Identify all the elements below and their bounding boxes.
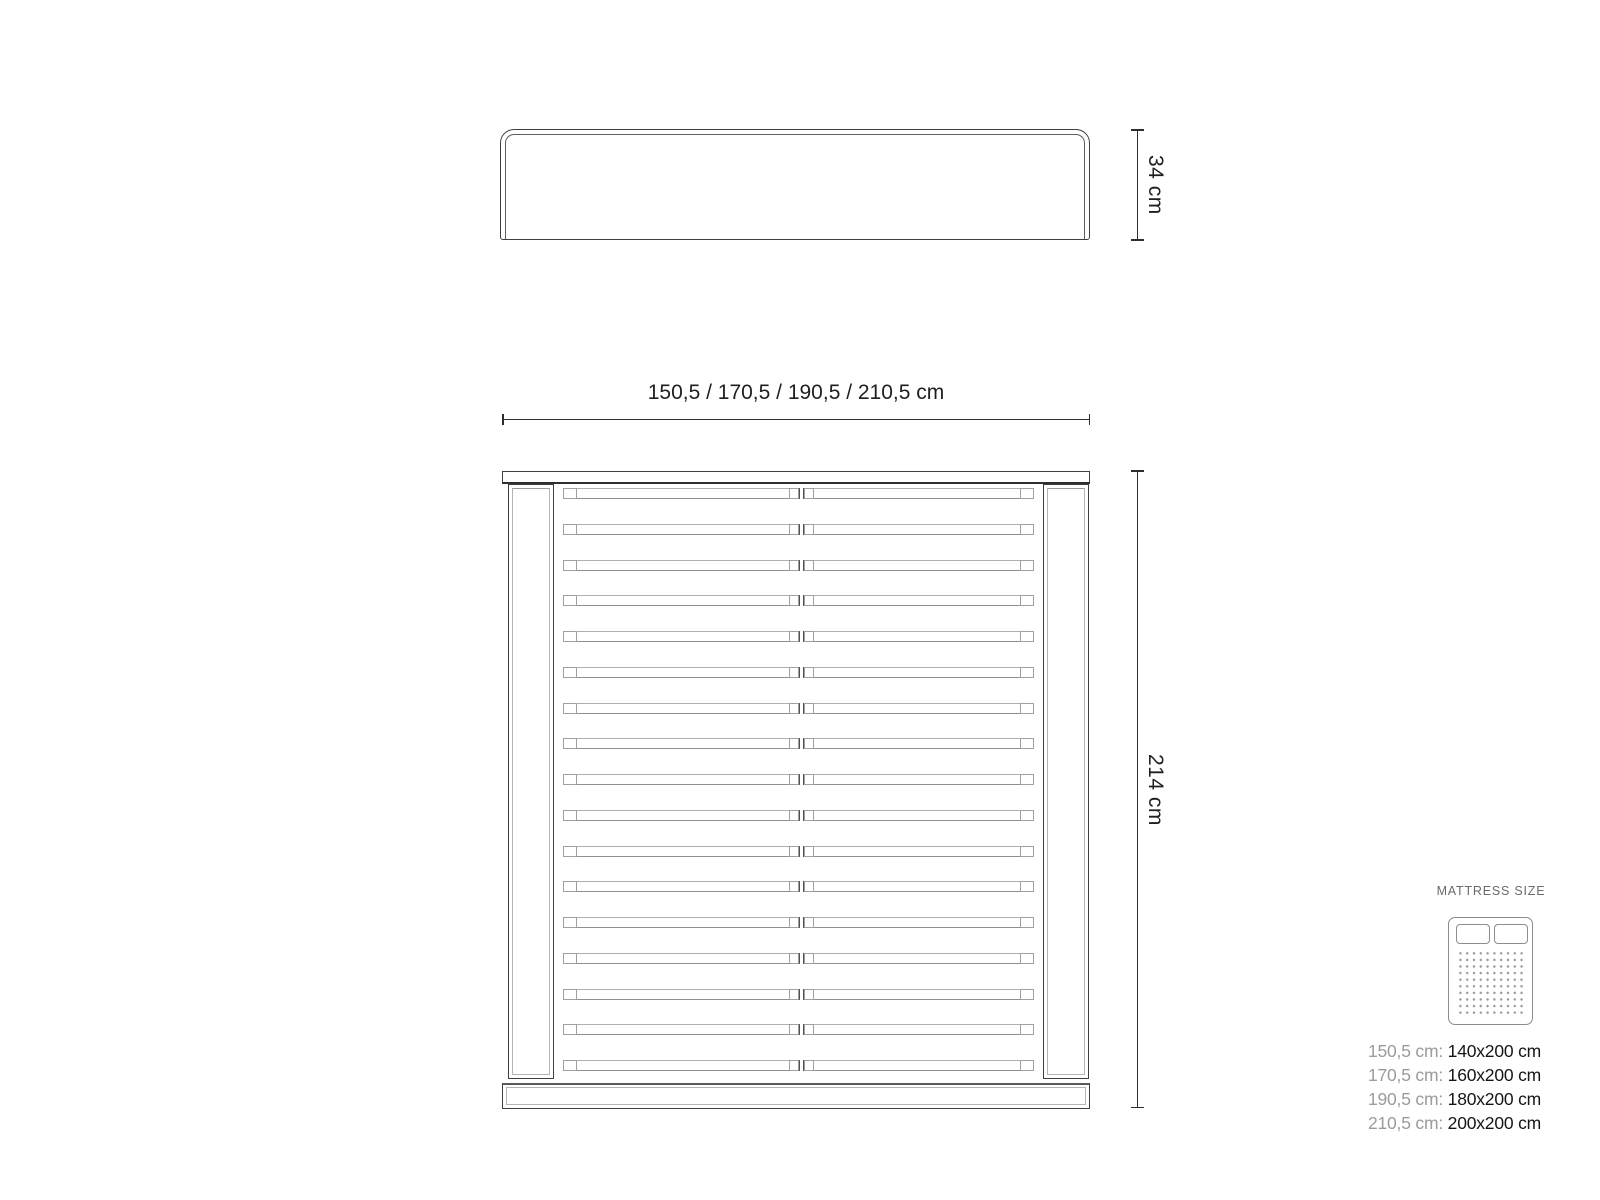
slat-center-cap-left [789, 989, 799, 1000]
slat-center-cap-right [804, 738, 814, 749]
slat-end-cap-left [563, 810, 577, 821]
slat-center-cap-left [789, 953, 799, 964]
side-rail-left-inner-line [512, 488, 550, 1075]
slat [563, 488, 1034, 499]
slat-center-cap-right [804, 774, 814, 785]
mattress-size-row: 150,5 cm: 140x200 cm [1361, 1039, 1541, 1063]
slat-end-cap-right [1020, 1024, 1034, 1035]
slat [563, 667, 1034, 678]
side-rail-right-inner-line [1047, 488, 1085, 1075]
slat [563, 1024, 1034, 1035]
slat-end-cap-left [563, 524, 577, 535]
slat-center-cap-right [804, 488, 814, 499]
slat-end-cap-left [563, 953, 577, 964]
slat [563, 774, 1034, 785]
headboard-top-edge-line [505, 134, 1085, 239]
slat-end-cap-left [563, 738, 577, 749]
dimension-cap-left [502, 414, 504, 425]
slat-center-cap-left [789, 881, 799, 892]
slat-end-cap-left [563, 1060, 577, 1071]
slat-center-cap-right [804, 667, 814, 678]
slat-end-cap-left [563, 881, 577, 892]
slat-end-cap-left [563, 774, 577, 785]
slat-end-cap-right [1020, 738, 1034, 749]
slat-center-cap-right [804, 631, 814, 642]
footboard-inner-line [506, 1087, 1086, 1105]
slat-center-cap-left [789, 738, 799, 749]
slat-end-cap-right [1020, 1060, 1034, 1071]
slat [563, 1060, 1034, 1071]
slat-center-cap-right [804, 953, 814, 964]
dimension-cap-top [1131, 470, 1144, 472]
slat-end-cap-right [1020, 488, 1034, 499]
mattress-size-list: 150,5 cm: 140x200 cm 170,5 cm: 160x200 c… [1361, 1039, 1541, 1135]
slat-end-cap-right [1020, 560, 1034, 571]
headboard-plan-bar [502, 471, 1090, 484]
headboard-height-label: 34 cm [1143, 129, 1167, 240]
slat [563, 703, 1034, 714]
slat-end-cap-right [1020, 810, 1034, 821]
slat [563, 810, 1034, 821]
side-rail-left [508, 484, 554, 1079]
slat-end-cap-right [1020, 667, 1034, 678]
dimension-line-frame-width [502, 419, 1090, 420]
mattress-size-row: 190,5 cm: 180x200 cm [1361, 1087, 1541, 1111]
slat-center-cap-right [804, 881, 814, 892]
slat-end-cap-left [563, 917, 577, 928]
mattress-size-value: 200x200 cm [1448, 1113, 1541, 1133]
mattress-size-value: 180x200 cm [1448, 1089, 1541, 1109]
dimension-line-frame-length [1137, 471, 1138, 1108]
slat-end-cap-left [563, 631, 577, 642]
slat-end-cap-left [563, 846, 577, 857]
slat [563, 560, 1034, 571]
dimension-cap-top [1131, 129, 1144, 131]
frame-size-label: 170,5 cm: [1368, 1065, 1448, 1085]
slat-center-cap-right [804, 1024, 814, 1035]
mattress-size-value: 160x200 cm [1448, 1065, 1541, 1085]
mattress-size-row: 170,5 cm: 160x200 cm [1361, 1063, 1541, 1087]
double-mattress-icon [1448, 917, 1533, 1025]
slat-center-cap-right [804, 1060, 814, 1071]
mattress-size-value: 140x200 cm [1448, 1041, 1541, 1061]
slat-end-cap-right [1020, 881, 1034, 892]
slat-end-cap-right [1020, 953, 1034, 964]
slat-center-cap-left [789, 595, 799, 606]
slat-end-cap-left [563, 488, 577, 499]
slat-end-cap-right [1020, 595, 1034, 606]
slat [563, 881, 1034, 892]
slat-center-cap-left [789, 846, 799, 857]
bed-frame-plan-view [502, 471, 1090, 1108]
pillow-left-icon [1456, 924, 1490, 944]
slat-center-cap-right [804, 703, 814, 714]
slat-end-cap-right [1020, 846, 1034, 857]
slat-center-cap-left [789, 667, 799, 678]
slat-center-cap-left [789, 917, 799, 928]
slat-end-cap-left [563, 703, 577, 714]
slat-center-cap-right [804, 560, 814, 571]
slat-end-cap-right [1020, 989, 1034, 1000]
footboard-plan-bar [502, 1083, 1090, 1109]
slat-center-cap-left [789, 774, 799, 785]
slat [563, 953, 1034, 964]
slat-end-cap-right [1020, 524, 1034, 535]
slat [563, 595, 1034, 606]
slat-center-cap-left [789, 524, 799, 535]
slat-area [563, 488, 1034, 1078]
slat [563, 846, 1034, 857]
frame-size-label: 150,5 cm: [1368, 1041, 1448, 1061]
slat-center-cap-left [789, 631, 799, 642]
mattress-size-title: MATTRESS SIZE [1410, 884, 1572, 898]
dimension-cap-bottom [1131, 1107, 1144, 1109]
slat-center-cap-left [789, 560, 799, 571]
headboard-front-view [500, 129, 1090, 240]
bed-dimensions-diagram: 34 cm 150,5 / 170,5 / 190,5 / 210,5 cm 2… [0, 0, 1600, 1200]
frame-width-label: 150,5 / 170,5 / 190,5 / 210,5 cm [502, 381, 1090, 405]
slat [563, 524, 1034, 535]
slat-end-cap-right [1020, 631, 1034, 642]
slat-end-cap-right [1020, 917, 1034, 928]
slat-end-cap-right [1020, 703, 1034, 714]
slat-end-cap-left [563, 989, 577, 1000]
dimension-cap-right [1089, 414, 1091, 425]
slat-center-cap-left [789, 1060, 799, 1071]
frame-size-label: 190,5 cm: [1368, 1089, 1448, 1109]
slat-center-cap-left [789, 703, 799, 714]
slat-center-cap-right [804, 810, 814, 821]
slat-center-cap-right [804, 989, 814, 1000]
slat-end-cap-left [563, 560, 577, 571]
slat-end-cap-left [563, 1024, 577, 1035]
slat-center-cap-right [804, 595, 814, 606]
mattress-size-row: 210,5 cm: 200x200 cm [1361, 1111, 1541, 1135]
slat [563, 989, 1034, 1000]
frame-length-label: 214 cm [1143, 471, 1167, 1108]
slat-end-cap-left [563, 667, 577, 678]
dimension-cap-bottom [1131, 239, 1144, 241]
slat-end-cap-left [563, 595, 577, 606]
slat [563, 738, 1034, 749]
slat-center-cap-right [804, 524, 814, 535]
slat-center-cap-left [789, 488, 799, 499]
side-rail-right [1043, 484, 1089, 1079]
slat-center-cap-left [789, 1024, 799, 1035]
slat-center-cap-right [804, 917, 814, 928]
pillow-right-icon [1494, 924, 1528, 944]
frame-size-label: 210,5 cm: [1368, 1113, 1448, 1133]
slat-center-cap-left [789, 810, 799, 821]
slat-end-cap-right [1020, 774, 1034, 785]
dimension-line-headboard-height [1137, 130, 1138, 240]
slat-center-cap-right [804, 846, 814, 857]
mattress-tufting-dots [1456, 949, 1526, 1017]
slat [563, 631, 1034, 642]
slat [563, 917, 1034, 928]
